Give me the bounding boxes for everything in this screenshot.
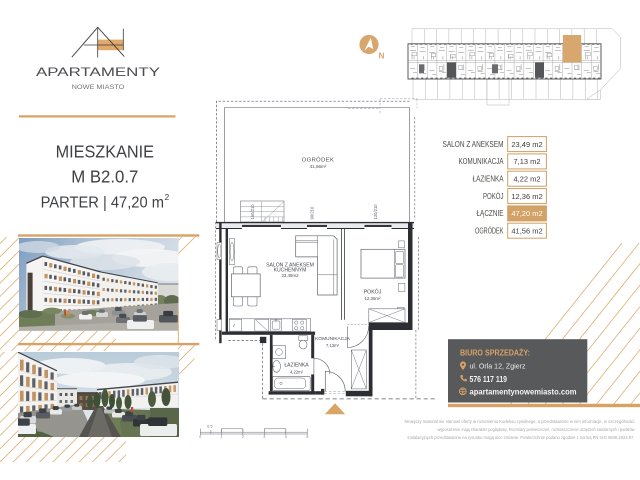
svg-text:576 117 119: 576 117 119	[470, 375, 508, 384]
svg-text:4,22 m2: 4,22 m2	[513, 175, 540, 184]
svg-text:12,36m²: 12,36m²	[364, 296, 381, 301]
svg-text:160/210: 160/210	[250, 204, 255, 220]
svg-text:PARTER | 47,20 m: PARTER | 47,20 m	[41, 195, 164, 212]
svg-text:7,13 m2: 7,13 m2	[513, 157, 540, 166]
svg-text:BIURO SPRZEDAŻY:: BIURO SPRZEDAŻY:	[460, 348, 530, 358]
svg-text:wyposażenie mają charakter pog: wyposażenie mają charakter poglądowy. Ro…	[438, 427, 636, 432]
svg-text:90/210: 90/210	[310, 206, 315, 219]
svg-text:23,49m2: 23,49m2	[281, 273, 299, 278]
svg-text:ŁĄCZNIE: ŁĄCZNIE	[477, 209, 504, 218]
svg-text:0,5: 0,5	[207, 425, 212, 429]
svg-text:5: 5	[306, 435, 308, 439]
svg-text:1: 1	[220, 435, 222, 439]
svg-text:SALON Z ANEKSEM: SALON Z ANEKSEM	[443, 140, 504, 149]
svg-text:47,20 m2: 47,20 m2	[511, 209, 542, 218]
svg-text:7,13m²: 7,13m²	[326, 343, 340, 348]
svg-text:ul. Orla 12, Zgierz: ul. Orla 12, Zgierz	[470, 362, 526, 371]
svg-text:KOMUNIKACJA: KOMUNIKACJA	[315, 336, 350, 342]
svg-text:41,56 m2: 41,56 m2	[511, 227, 542, 236]
svg-text:Niniejszy materiał nie stanowi: Niniejszy materiał nie stanowi oferty w …	[405, 419, 635, 424]
svg-text:POKÓJ: POKÓJ	[483, 192, 504, 201]
svg-text:12,36 m2: 12,36 m2	[511, 192, 542, 201]
svg-text:2: 2	[165, 192, 170, 202]
svg-text:KOMUNIKACJA: KOMUNIKACJA	[459, 157, 505, 166]
svg-text:120/210: 120/210	[373, 204, 378, 220]
svg-text:4: 4	[285, 435, 287, 439]
svg-text:2: 2	[242, 435, 244, 439]
svg-text:M B2.0.7: M B2.0.7	[71, 167, 138, 187]
svg-text:NOWE MIASTO: NOWE MIASTO	[72, 84, 125, 91]
svg-text:POKÓJ: POKÓJ	[364, 288, 382, 295]
svg-text:apartamentynowemiasto.com: apartamentynowemiasto.com	[470, 388, 577, 397]
svg-text:41,56m²: 41,56m²	[310, 164, 327, 169]
svg-text:3: 3	[263, 435, 265, 439]
svg-text:OGRÓDEK: OGRÓDEK	[302, 157, 334, 164]
svg-text:ŁAZIENKA: ŁAZIENKA	[473, 175, 505, 184]
svg-text:instalacyjnych przedstawione n: instalacyjnych przedstawione na rysunku …	[408, 435, 635, 440]
svg-text:23,49 m2: 23,49 m2	[511, 140, 542, 149]
svg-text:0: 0	[199, 435, 201, 439]
svg-text:ŁAZIENKA: ŁAZIENKA	[284, 363, 309, 369]
svg-text:APARTAMENTY: APARTAMENTY	[36, 65, 160, 79]
svg-text:4,22m²: 4,22m²	[290, 370, 304, 375]
svg-text:OGRÓDEK: OGRÓDEK	[475, 227, 504, 236]
svg-text:MIESZKANIE: MIESZKANIE	[56, 142, 154, 162]
svg-text:N: N	[379, 52, 385, 61]
